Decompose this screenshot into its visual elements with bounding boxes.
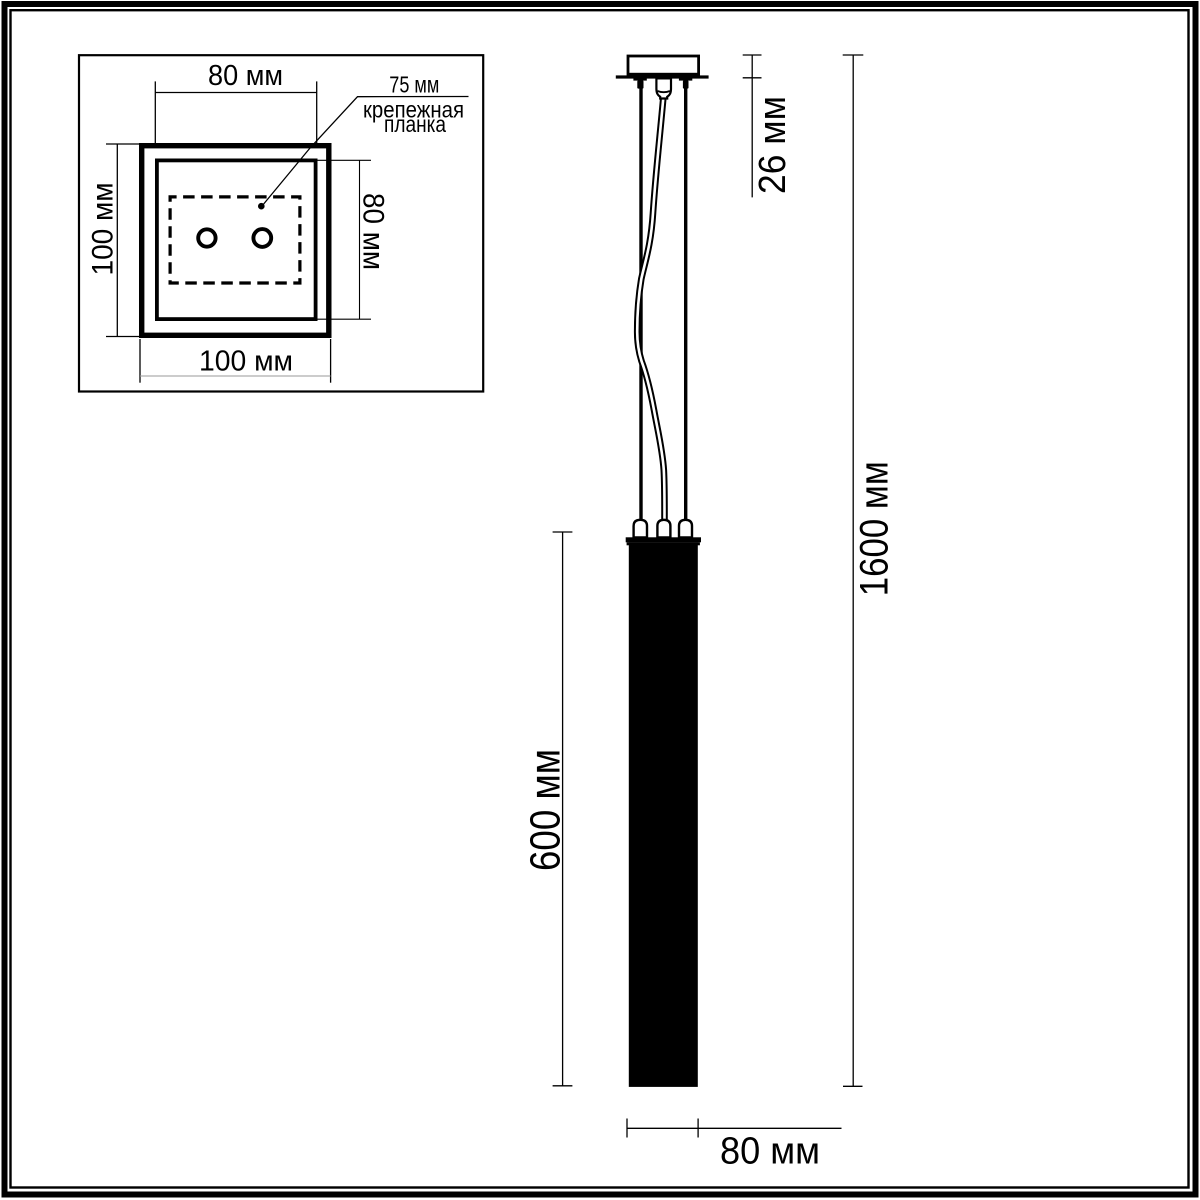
svg-text:80 мм: 80 мм — [208, 60, 283, 92]
svg-text:600 мм: 600 мм — [521, 749, 569, 871]
svg-text:75 мм: 75 мм — [389, 72, 439, 98]
svg-text:100 мм: 100 мм — [87, 183, 120, 276]
svg-text:80 мм: 80 мм — [720, 1131, 820, 1173]
svg-text:планка: планка — [384, 111, 447, 137]
svg-text:100 мм: 100 мм — [199, 346, 293, 378]
svg-text:26 мм: 26 мм — [752, 96, 794, 194]
svg-text:1600 мм: 1600 мм — [853, 461, 897, 596]
svg-text:80 мм: 80 мм — [356, 193, 389, 270]
